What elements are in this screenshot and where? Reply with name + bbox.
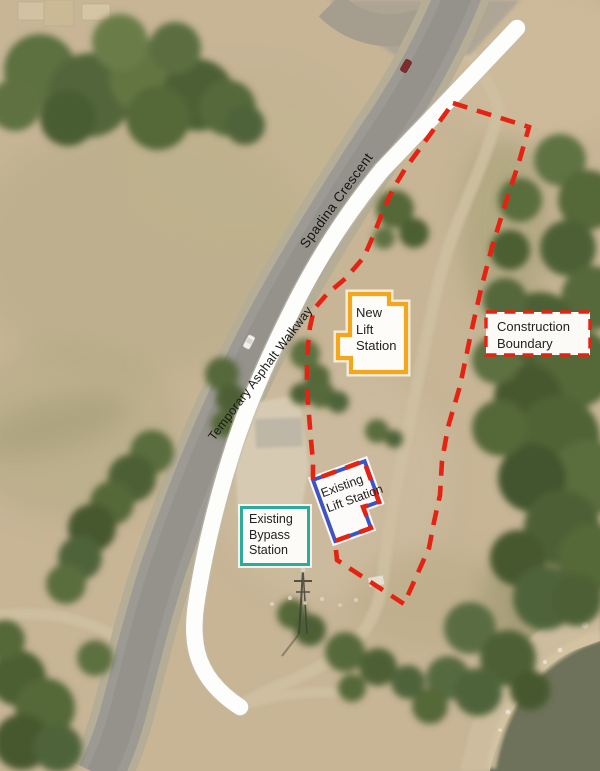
old-foundation (255, 417, 303, 448)
existing-bypass-station-label: Existing Bypass Station (240, 506, 310, 566)
construction-boundary-label: Construction Boundary (497, 318, 570, 352)
construction-site-aerial-map: Spadina Crescent Temporary Asphalt Walkw… (0, 0, 600, 771)
aerial-imagery (0, 0, 600, 771)
new-lift-station-label: New Lift Station (356, 305, 396, 355)
